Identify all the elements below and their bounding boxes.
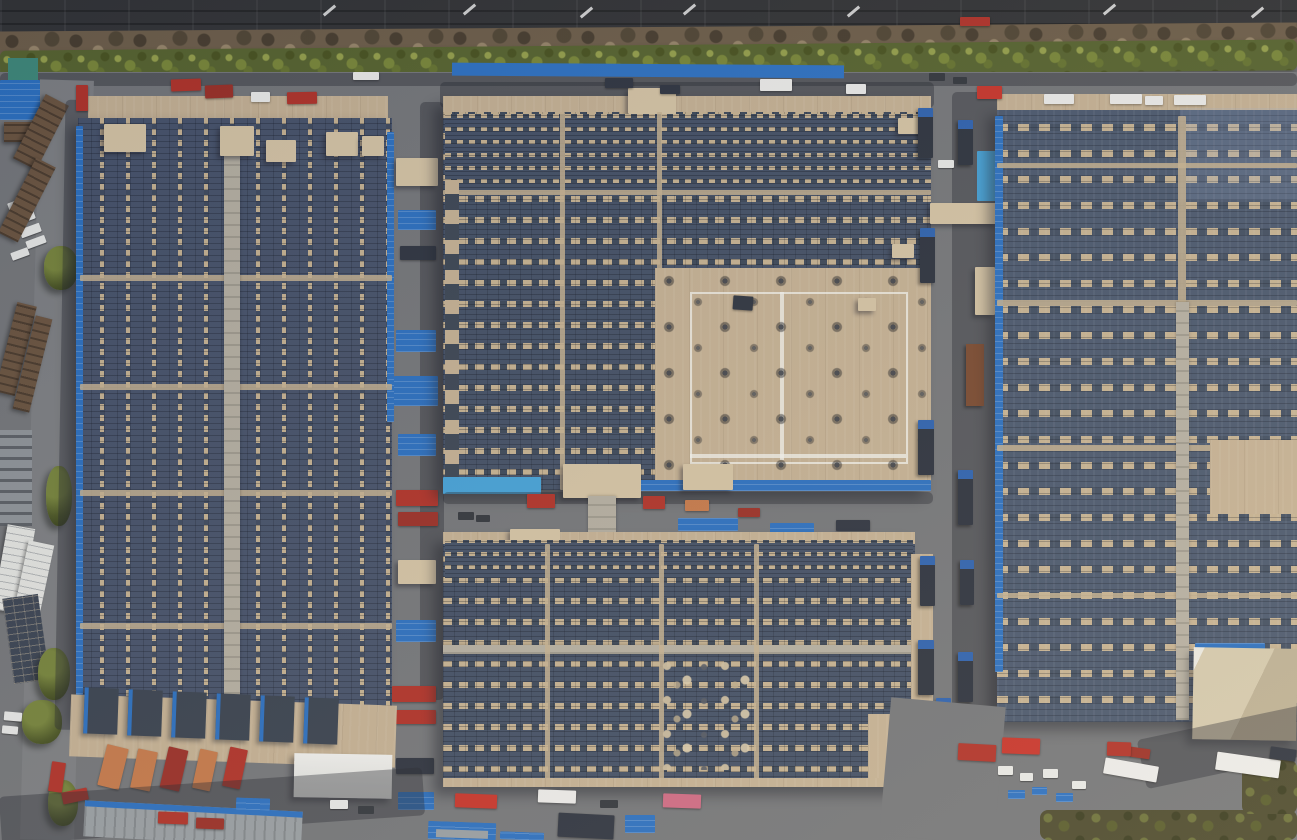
sunlight-overlay (0, 0, 1297, 840)
aerial-photo-industrial-solar-campus (0, 0, 1297, 840)
